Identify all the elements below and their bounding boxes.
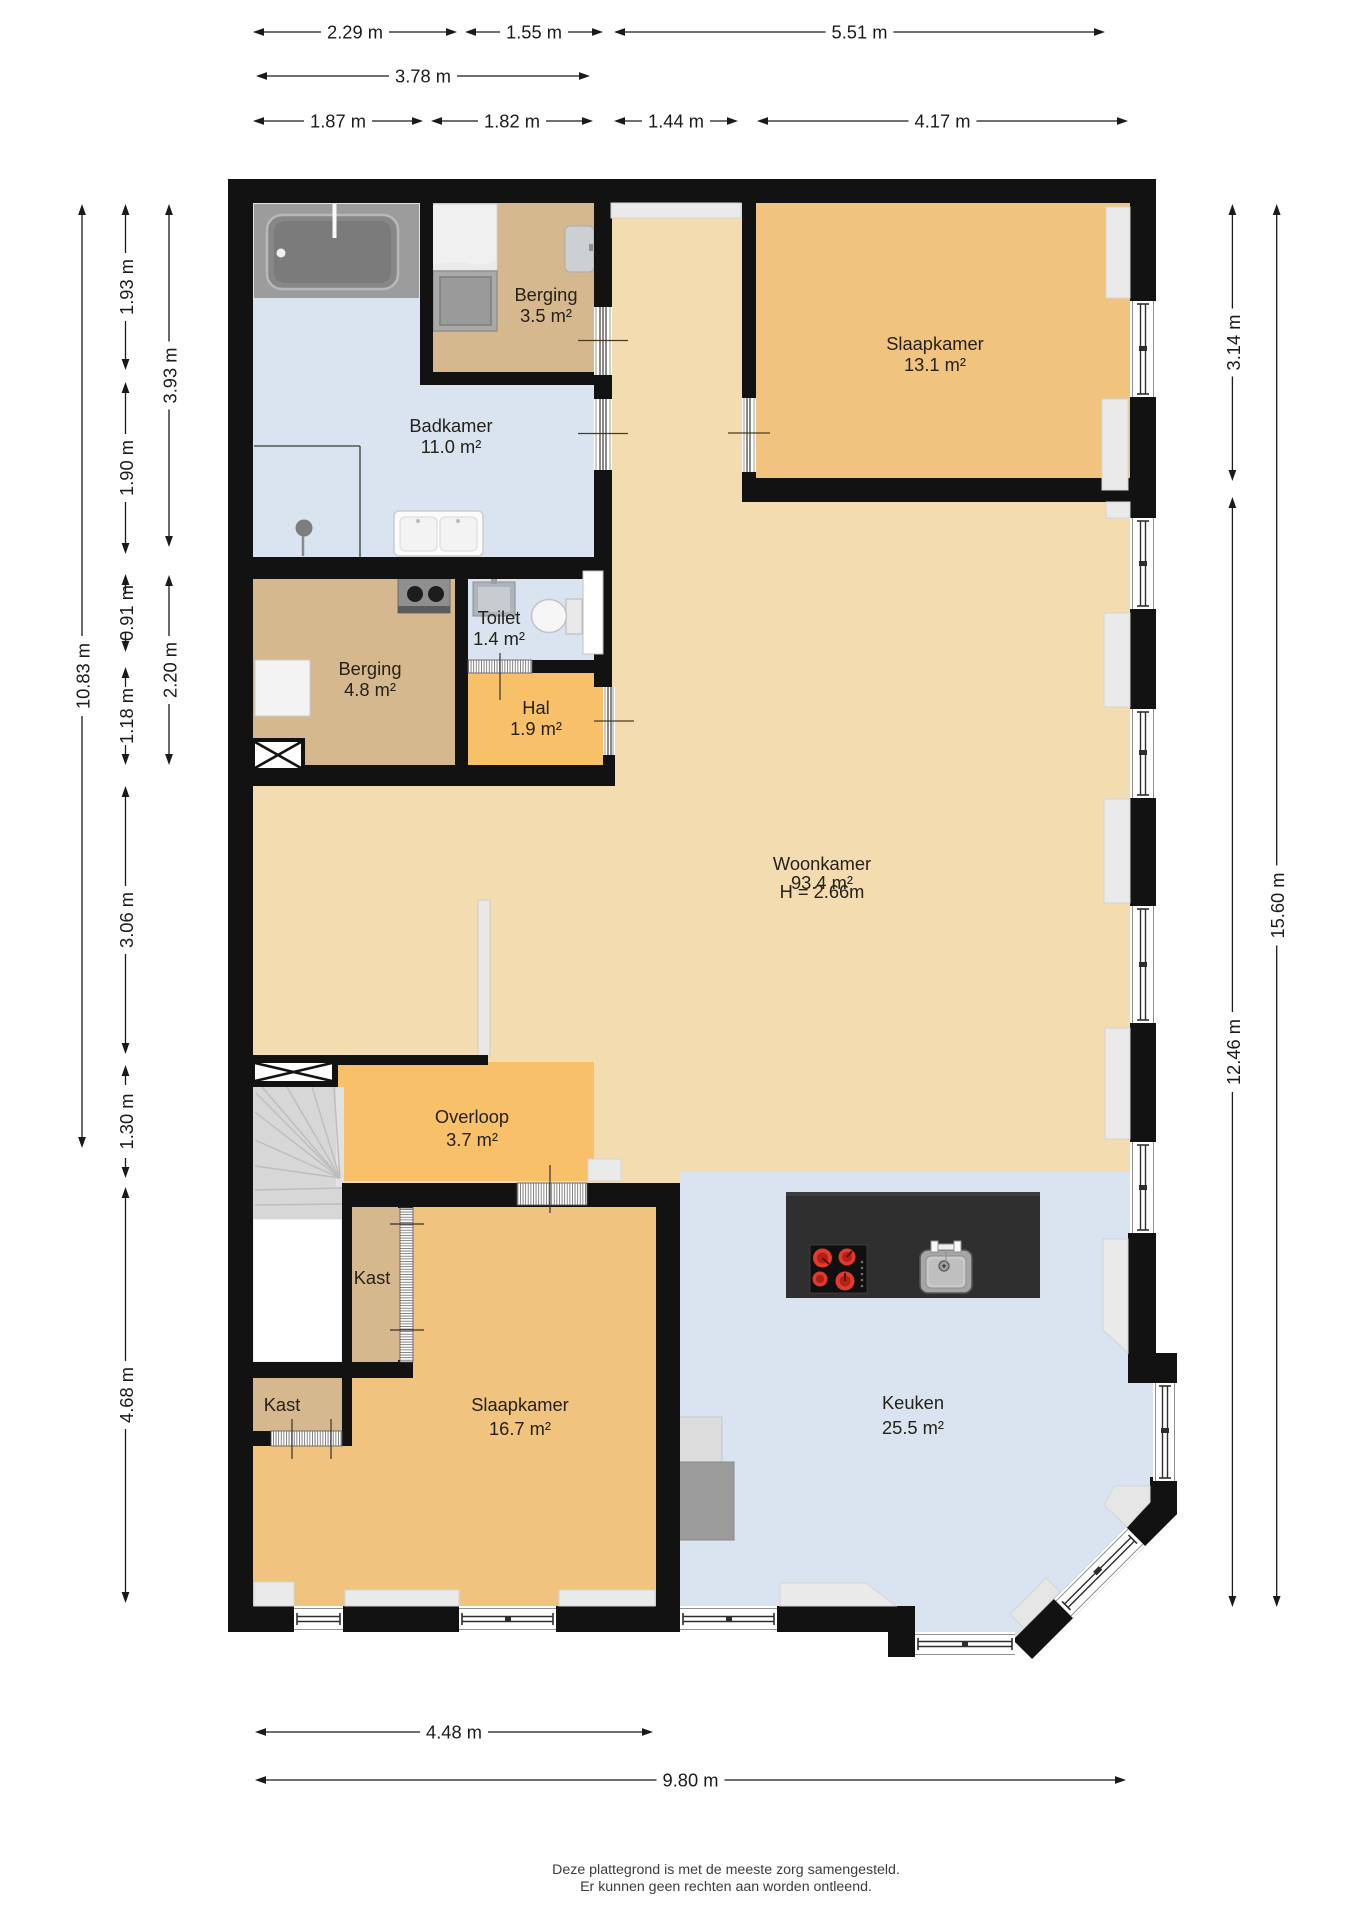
svg-text:1.4 m²: 1.4 m² (473, 628, 525, 649)
svg-text:Woonkamer: Woonkamer (773, 853, 871, 874)
svg-text:Kast: Kast (264, 1394, 301, 1415)
svg-text:1.90 m: 1.90 m (116, 440, 137, 496)
svg-text:3.78 m: 3.78 m (395, 66, 451, 87)
svg-text:13.1 m²: 13.1 m² (904, 354, 966, 375)
svg-text:9.80 m: 9.80 m (663, 1770, 719, 1791)
svg-text:10.83 m: 10.83 m (73, 643, 94, 709)
svg-text:3.7 m²: 3.7 m² (446, 1129, 498, 1150)
svg-text:Keuken: Keuken (882, 1392, 944, 1413)
svg-text:4.8 m²: 4.8 m² (344, 679, 396, 700)
svg-text:H = 2.66m: H = 2.66m (780, 881, 865, 902)
svg-text:Toilet: Toilet (478, 607, 521, 628)
svg-text:Deze plattegrond is met de mee: Deze plattegrond is met de meeste zorg s… (552, 1862, 900, 1878)
svg-text:4.68 m: 4.68 m (116, 1367, 137, 1423)
svg-text:1.82 m: 1.82 m (484, 111, 540, 132)
svg-text:1.93 m: 1.93 m (116, 259, 137, 315)
svg-text:11.0 m²: 11.0 m² (421, 436, 482, 457)
svg-text:4.17 m: 4.17 m (915, 111, 971, 132)
svg-text:1.87 m: 1.87 m (310, 111, 366, 132)
svg-text:3.93 m: 3.93 m (160, 348, 181, 404)
svg-text:1.30 m: 1.30 m (116, 1094, 137, 1150)
svg-text:2.29 m: 2.29 m (327, 22, 383, 43)
svg-text:Berging: Berging (338, 658, 401, 679)
svg-text:3.06 m: 3.06 m (116, 892, 137, 948)
svg-text:Berging: Berging (514, 284, 577, 305)
svg-text:1.18 m: 1.18 m (116, 688, 137, 744)
svg-text:Slaapkamer: Slaapkamer (471, 1394, 569, 1415)
svg-text:25.5 m²: 25.5 m² (882, 1417, 944, 1438)
svg-text:5.51 m: 5.51 m (832, 22, 888, 43)
svg-text:1.55 m: 1.55 m (506, 22, 562, 43)
svg-text:1.44 m: 1.44 m (648, 111, 704, 132)
svg-text:16.7 m²: 16.7 m² (489, 1418, 551, 1439)
svg-text:15.60 m: 15.60 m (1267, 872, 1288, 938)
svg-text:12.46 m: 12.46 m (1223, 1019, 1244, 1085)
svg-text:4.48 m: 4.48 m (426, 1722, 482, 1743)
svg-text:0.91 m: 0.91 m (116, 585, 137, 641)
svg-text:3.14 m: 3.14 m (1223, 315, 1244, 371)
svg-text:Hal: Hal (522, 697, 549, 718)
svg-text:Slaapkamer: Slaapkamer (886, 333, 984, 354)
svg-text:3.5 m²: 3.5 m² (520, 305, 572, 326)
svg-text:Badkamer: Badkamer (409, 415, 492, 436)
svg-text:1.9 m²: 1.9 m² (510, 718, 562, 739)
svg-text:Overloop: Overloop (435, 1106, 509, 1127)
svg-text:Er kunnen geen rechten aan wor: Er kunnen geen rechten aan worden ontlee… (580, 1879, 872, 1895)
svg-text:Kast: Kast (354, 1267, 391, 1288)
svg-text:2.20 m: 2.20 m (160, 642, 181, 698)
